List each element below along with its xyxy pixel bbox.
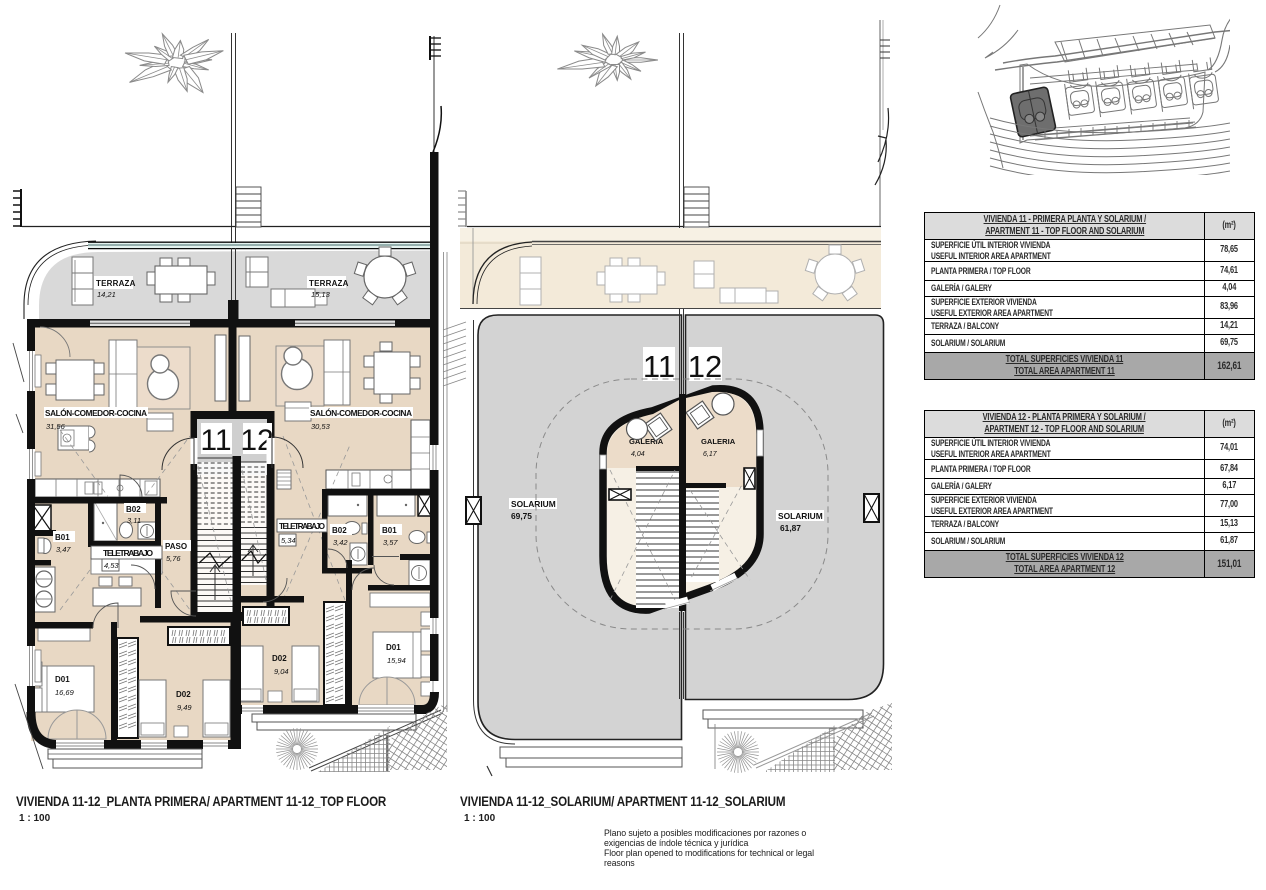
- svg-text:TELETRABAJO: TELETRABAJO: [103, 548, 153, 558]
- svg-text:69,75: 69,75: [511, 511, 532, 521]
- svg-text:3,11: 3,11: [127, 516, 141, 525]
- svg-text:D02: D02: [272, 654, 287, 663]
- svg-text:PASO: PASO: [165, 542, 187, 551]
- svg-text:B01: B01: [55, 533, 70, 542]
- svg-text:11: 11: [200, 424, 231, 457]
- svg-text:SOLARIUM: SOLARIUM: [511, 499, 556, 509]
- svg-text:D01: D01: [55, 675, 70, 684]
- svg-text:3,42: 3,42: [333, 538, 348, 547]
- svg-text:SALÓN-COMEDOR-COCINA: SALÓN-COMEDOR-COCINA: [45, 407, 147, 418]
- svg-text:4,53: 4,53: [104, 561, 119, 570]
- svg-text:4,04: 4,04: [631, 451, 645, 458]
- svg-text:30,53: 30,53: [311, 422, 331, 431]
- svg-text:B01: B01: [382, 526, 397, 535]
- svg-text:B02: B02: [332, 526, 347, 535]
- svg-text:16,69: 16,69: [55, 688, 75, 697]
- svg-text:B02: B02: [126, 505, 141, 514]
- svg-text:15,13: 15,13: [311, 290, 331, 299]
- svg-text:9,49: 9,49: [177, 703, 192, 712]
- svg-text:TERRAZA: TERRAZA: [309, 279, 349, 288]
- svg-text:3,57: 3,57: [383, 538, 398, 547]
- svg-text:3,47: 3,47: [56, 545, 71, 554]
- svg-text:SOLARIUM: SOLARIUM: [778, 511, 823, 521]
- svg-text:61,87: 61,87: [780, 523, 801, 533]
- svg-text:TELETRABAJO: TELETRABAJO: [279, 522, 326, 531]
- svg-text:TERRAZA: TERRAZA: [96, 279, 136, 288]
- svg-text:31,56: 31,56: [46, 422, 66, 431]
- svg-text:9,04: 9,04: [274, 667, 289, 676]
- svg-text:14,21: 14,21: [97, 290, 116, 299]
- svg-text:SALÓN-COMEDOR-COCINA: SALÓN-COMEDOR-COCINA: [310, 407, 412, 418]
- svg-text:GALERIA: GALERIA: [701, 437, 736, 446]
- svg-text:15,94: 15,94: [387, 656, 406, 665]
- svg-text:6,17: 6,17: [703, 451, 718, 458]
- svg-text:5,34: 5,34: [281, 536, 296, 545]
- svg-text:D01: D01: [386, 643, 401, 652]
- svg-text:D02: D02: [176, 690, 191, 699]
- svg-text:5,76: 5,76: [166, 554, 181, 563]
- svg-text:11: 11: [643, 349, 675, 384]
